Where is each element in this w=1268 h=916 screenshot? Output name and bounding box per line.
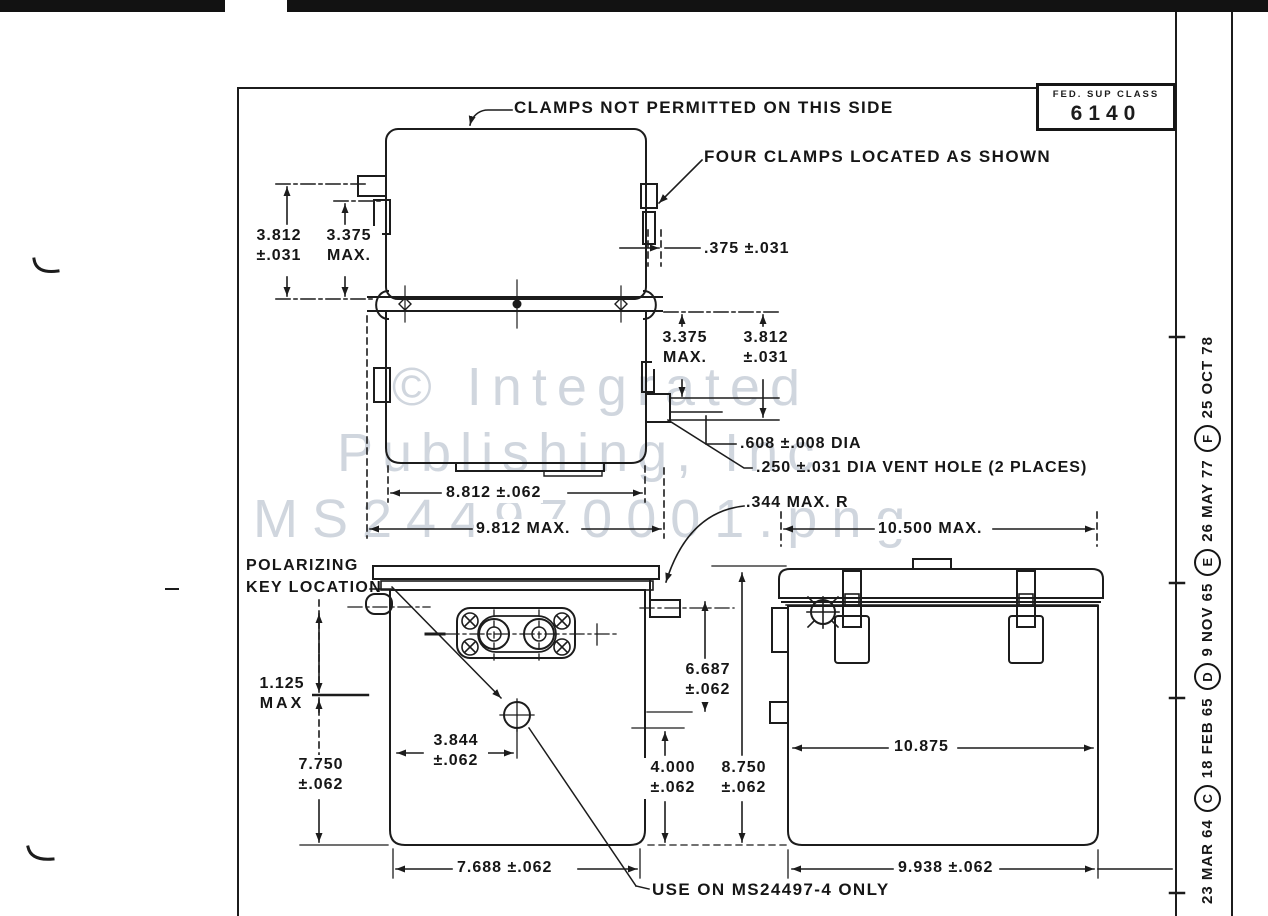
- dim-tolerance: ±.062: [426, 751, 486, 771]
- dim-value: 3.375: [318, 226, 380, 246]
- fed-sup-class-label: FED. SUP CLASS: [1039, 89, 1173, 100]
- dim-3375-right: 3.375 MAX.: [652, 328, 718, 369]
- dim-tolerance: ±.062: [644, 778, 702, 798]
- dim-tolerance: ±.062: [715, 778, 773, 798]
- dim-value: 1.125: [254, 674, 310, 694]
- clamps-note-leader: [470, 110, 512, 125]
- dim-3812-left: 3.812 ±.031: [248, 226, 310, 267]
- polarizing-key-hole: [500, 699, 534, 731]
- note-polarizing-key-line2: KEY LOCATION: [246, 577, 382, 599]
- side-tab: [770, 702, 788, 723]
- revision-strip: 23 MAR 64 C 18 FEB 65 D 9 NOV 65 E 26 MA…: [1182, 332, 1232, 908]
- note-clamps-not-permitted: CLAMPS NOT PERMITTED ON THIS SIDE: [514, 98, 894, 118]
- revision-letter: F: [1194, 425, 1221, 452]
- clamp-lug: [643, 212, 655, 244]
- dim-3812-right: 3.812 ±.031: [733, 328, 799, 369]
- dim-tolerance: ±.062: [292, 775, 350, 795]
- dim-value: 3.812: [250, 226, 308, 246]
- front-view-dimensions: [300, 566, 788, 878]
- dim-1125: 1.125 MAX: [252, 674, 312, 715]
- four-clamps-leader: [659, 160, 702, 203]
- dim-value: 8.750: [715, 758, 773, 778]
- dim-tolerance: MAX: [254, 694, 310, 714]
- revision-date: 26 MAY 77: [1199, 459, 1216, 541]
- note-polarizing-key-line1: POLARIZING: [246, 555, 382, 577]
- top-view: [358, 129, 779, 476]
- dim-value: 6.687: [679, 660, 737, 680]
- side-lid: [779, 569, 1103, 598]
- dim-344-radius: .344 MAX. R: [746, 493, 849, 513]
- dim-6687: 6.687 ±.062: [677, 660, 739, 701]
- front-lid: [373, 566, 659, 579]
- vent-boss: [646, 394, 670, 422]
- dim-tolerance: ±.031: [735, 348, 797, 368]
- revision-date: 18 FEB 65: [1199, 697, 1216, 778]
- clamp-latch: [835, 571, 869, 663]
- dim-tolerance: ±.031: [250, 246, 308, 266]
- revision-letter: D: [1194, 664, 1221, 691]
- dim-value: 3.812: [735, 328, 797, 348]
- dim-9938: 9.938 ±.062: [896, 858, 995, 878]
- dim-9812: 9.812 MAX.: [474, 519, 572, 539]
- revision-date: 23 MAR 64: [1199, 819, 1216, 904]
- fed-sup-class-box: FED. SUP CLASS 6140: [1036, 83, 1176, 131]
- side-tab: [772, 608, 788, 652]
- dim-value: 7.750: [292, 755, 350, 775]
- dim-7688: 7.688 ±.062: [455, 858, 554, 878]
- revision-date: 25 OCT 78: [1199, 336, 1216, 418]
- side-view: [770, 559, 1103, 845]
- dim-608-dia: .608 ±.008 DIA: [740, 434, 862, 454]
- dim-tolerance: ±.062: [679, 680, 737, 700]
- dim-value: 3.375: [654, 328, 716, 348]
- dim-8812: 8.812 ±.062: [444, 483, 543, 503]
- clamp-lug: [358, 176, 386, 196]
- revision-letter: C: [1194, 785, 1221, 812]
- note-use-on: USE ON MS24497-4 ONLY: [652, 880, 890, 900]
- scan-mark-top: [34, 259, 58, 272]
- dim-7750: 7.750 ±.062: [290, 755, 352, 796]
- clamp-lug: [641, 184, 657, 208]
- dim-tolerance: MAX.: [654, 348, 716, 368]
- dim-375: .375 ±.031: [704, 239, 790, 259]
- fed-sup-class-value: 6140: [1039, 102, 1173, 126]
- dim-8750: 8.750 ±.062: [713, 758, 775, 799]
- dim-3375-left: 3.375 MAX.: [316, 226, 382, 267]
- dim-value: 3.844: [426, 731, 486, 751]
- note-four-clamps: FOUR CLAMPS LOCATED AS SHOWN: [704, 147, 1051, 167]
- dim-10875: 10.875: [892, 737, 951, 757]
- vent-hole: [807, 597, 839, 628]
- top-view-cover-outline: [386, 129, 646, 299]
- dim-10500: 10.500 MAX.: [876, 519, 984, 539]
- scan-mark-bottom: [28, 847, 53, 859]
- clamp-latch: [1009, 571, 1043, 663]
- scanned-drawing-page: © Integrated Publishing, Inc MS244970001…: [0, 0, 1268, 916]
- dim-value: 4.000: [644, 758, 702, 778]
- dim-tolerance: MAX.: [318, 246, 380, 266]
- note-polarizing-key: POLARIZING KEY LOCATION: [246, 555, 382, 598]
- connector: [457, 608, 575, 658]
- clamp-lug: [374, 368, 390, 402]
- revision-date: 9 NOV 65: [1199, 583, 1216, 657]
- revision-letter: E: [1194, 549, 1221, 576]
- dim-4000: 4.000 ±.062: [642, 758, 704, 799]
- dim-3844: 3.844 ±.062: [424, 731, 488, 772]
- top-view-body-outline: [386, 311, 646, 463]
- dim-250-vent-hole: .250 ±.031 DIA VENT HOLE (2 PLACES): [756, 458, 1087, 478]
